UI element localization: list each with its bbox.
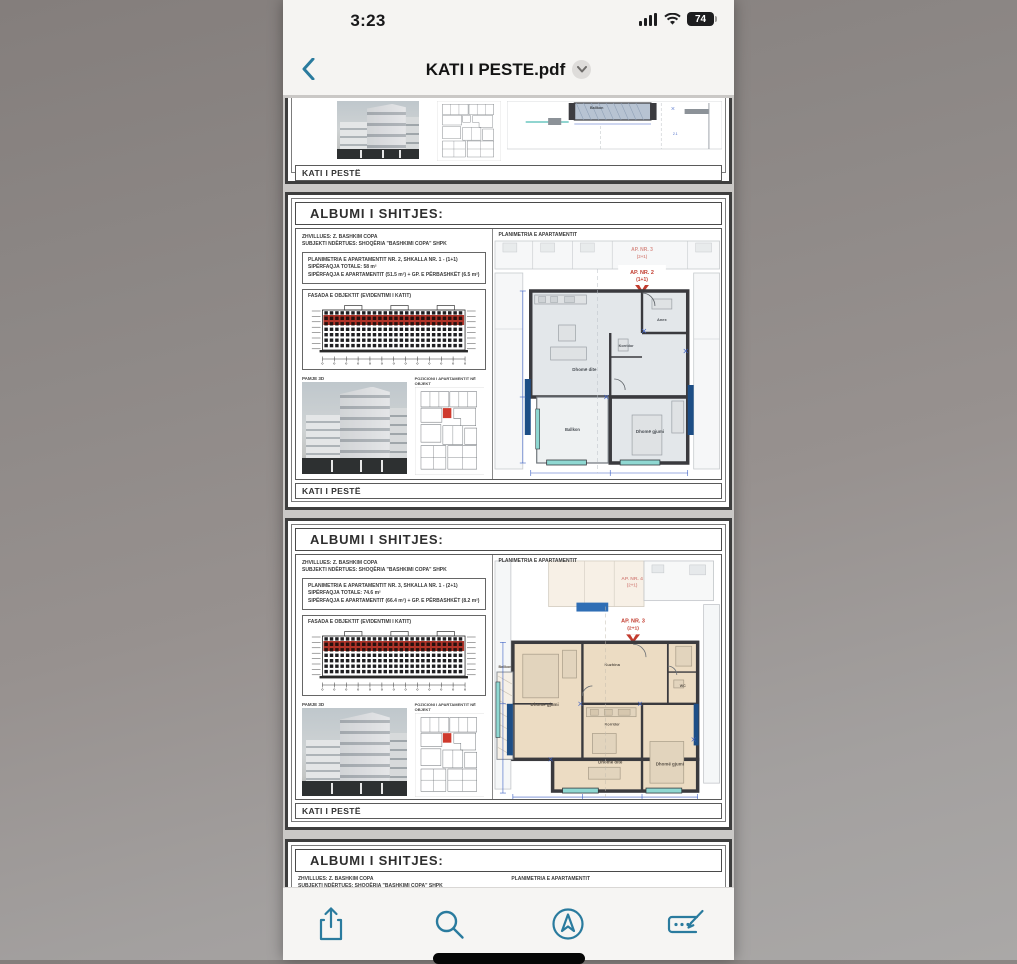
- svg-text:Dhomë gjumi: Dhomë gjumi: [655, 761, 683, 766]
- back-button[interactable]: [291, 51, 325, 87]
- status-time: 3:23: [333, 11, 403, 31]
- svg-text:Dhomë dite: Dhomë dite: [572, 367, 597, 372]
- facade-label: FASADA E OBJEKTIT (EVIDENTIMI I KATIT): [308, 619, 480, 625]
- plan-caption: PLANIMETRIA E APARTAMENTIT: [511, 876, 722, 883]
- nav-bar: KATI I PESTE.pdf: [283, 44, 734, 95]
- chevron-down-icon: [577, 66, 587, 73]
- plan-caption: PLANIMETRIA E APARTAMENTIT: [499, 232, 578, 238]
- facade-elevation-drawing: [308, 303, 480, 367]
- pdf-page-4-partial: ALBUMI I SHITJES: ZHVILLUES: Z. BASHKIM …: [285, 839, 732, 887]
- facade-label: FASADA E OBJEKTIT (EVIDENTIMI I KATIT): [308, 293, 480, 299]
- navigate-button[interactable]: [546, 902, 590, 946]
- info-line-1: PLANIMETRIA E APARTAMENTIT NR. 3, SHKALL…: [308, 583, 480, 591]
- svg-text:WC: WC: [679, 684, 685, 688]
- info-line-1: PLANIMETRIA E APARTAMENTIT NR. 2, SHKALL…: [308, 257, 480, 265]
- svg-text:Ballkon: Ballkon: [590, 105, 604, 110]
- pdf-page-3: ALBUMI I SHITJES: ZHVILLUES: Z. BASHKIM …: [285, 518, 732, 830]
- apartment-info-box: PLANIMETRIA E APARTAMENTIT NR. 2, SHKALL…: [302, 252, 486, 285]
- page-footer-label: KATI I PESTË: [295, 165, 722, 181]
- key-plan: [437, 101, 501, 161]
- share-icon: [316, 906, 346, 942]
- plan-caption: PLANIMETRIA E APARTAMENTIT: [499, 558, 578, 564]
- pdf-page-1-partial: Ballkon 2.1 KATI I PESTË: [285, 98, 732, 184]
- search-button[interactable]: [427, 902, 471, 946]
- svg-text:(2+1): (2+1): [627, 625, 639, 631]
- key-plan: [415, 713, 485, 797]
- svg-text:Dhomë gjumi: Dhomë gjumi: [530, 702, 558, 707]
- facade-box: FASADA E OBJEKTIT (EVIDENTIMI I KATIT): [302, 615, 486, 696]
- developer-line-1: ZHVILLUES: Z. BASHKIM COPA: [302, 234, 486, 241]
- keyplan-caption: POZICIONI I APARTAMENTIT NË OBJEKT: [415, 702, 485, 712]
- page-footer-label: KATI I PESTË: [295, 803, 722, 819]
- svg-text:AP. NR. 4: AP. NR. 4: [621, 576, 643, 582]
- chevron-left-icon: [302, 58, 315, 80]
- svg-text:(2+1): (2+1): [636, 254, 647, 259]
- info-line-2: SIPËRFAQJA TOTALE: 74.6 m²: [308, 590, 480, 598]
- svg-text:2.1: 2.1: [673, 132, 678, 136]
- title-dropdown-button[interactable]: [572, 60, 591, 79]
- battery-icon: 74: [687, 12, 714, 26]
- markup-icon: [667, 908, 705, 940]
- phone-screen: 3:23: [283, 0, 734, 960]
- building-photo: [337, 101, 419, 159]
- svg-text:Dhomë dite: Dhomë dite: [598, 759, 623, 764]
- svg-text:(1+1): (1+1): [636, 277, 648, 283]
- floor-plan-1plus1: AP. NR. 3 (2+1) AP. NR. 2 (1+1) HYRJA: [493, 229, 722, 479]
- info-line-2: SIPËRFAQJA TOTALE: 58 m²: [308, 264, 480, 272]
- info-line-3: SIPËRFAQJA E APARTAMENTIT (66.4 m²) + GP…: [308, 598, 480, 606]
- wifi-icon: [664, 13, 681, 26]
- status-bar: 3:23: [283, 0, 734, 44]
- svg-text:Korridor: Korridor: [618, 344, 634, 348]
- apartment-info-box: PLANIMETRIA E APARTAMENTIT NR. 3, SHKALL…: [302, 578, 486, 611]
- key-plan: [415, 387, 485, 475]
- navigate-compass-icon: [551, 907, 585, 941]
- building-photo: [302, 382, 407, 474]
- screenshot-canvas: 3:23: [0, 0, 1017, 960]
- home-indicator[interactable]: [433, 953, 585, 964]
- floor-plan-fragment: Ballkon 2.1: [507, 101, 722, 161]
- svg-text:Dhomë gjumi: Dhomë gjumi: [635, 429, 663, 434]
- bottom-toolbar: [283, 887, 734, 960]
- keyplan-caption: POZICIONI I APARTAMENTIT NË OBJEKT: [415, 376, 485, 386]
- developer-line-2: SUBJEKTI NDËRTUES: SHOQËRIA "BASHKIMI CO…: [302, 567, 486, 574]
- photo-caption: PAMJE 3D: [302, 376, 407, 381]
- svg-text:(2+1): (2+1): [626, 583, 637, 588]
- document-title: KATI I PESTE.pdf: [426, 60, 565, 80]
- pdf-page-2: ALBUMI I SHITJES: ZHVILLUES: Z. BASHKIM …: [285, 192, 732, 510]
- facade-elevation-drawing: [308, 629, 480, 693]
- svg-text:Korridor: Korridor: [604, 723, 620, 727]
- share-button[interactable]: [309, 902, 353, 946]
- svg-text:Kuzhina: Kuzhina: [604, 662, 620, 667]
- album-header: ALBUMI I SHITJES:: [295, 202, 722, 225]
- battery-percent: 74: [695, 14, 706, 25]
- svg-text:Ballkon: Ballkon: [498, 665, 511, 669]
- building-photo: [302, 708, 407, 796]
- cellular-signal-icon: [639, 13, 658, 26]
- developer-line-1: ZHVILLUES: Z. BASHKIM COPA: [302, 560, 486, 567]
- page-footer-label: KATI I PESTË: [295, 483, 722, 499]
- svg-text:Ballkon: Ballkon: [564, 427, 579, 432]
- floor-plan-2plus1: AP. NR. 4 (2+1) AP. NR. 3 (2+1) HYRJA: [493, 555, 722, 799]
- info-line-3: SIPËRFAQJA E APARTAMENTIT (51.5 m²) + GP…: [308, 272, 480, 280]
- album-header: ALBUMI I SHITJES:: [295, 849, 722, 872]
- facade-box: FASADA E OBJEKTIT (EVIDENTIMI I KATIT): [302, 289, 486, 370]
- search-icon: [433, 908, 465, 940]
- photo-caption: PAMJE 3D: [302, 702, 407, 707]
- svg-text:AP. NR. 3: AP. NR. 3: [631, 247, 653, 253]
- developer-line-1: ZHVILLUES: Z. BASHKIM COPA: [298, 876, 477, 883]
- markup-button[interactable]: [664, 902, 708, 946]
- svg-text:AP. NR. 3: AP. NR. 3: [621, 618, 645, 624]
- svg-text:Anex: Anex: [657, 317, 667, 322]
- pdf-scroll-area[interactable]: Ballkon 2.1 KATI I PESTË ALBUMI I SHITJE…: [283, 95, 734, 887]
- svg-text:AP. NR. 2: AP. NR. 2: [630, 270, 654, 276]
- developer-line-2: SUBJEKTI NDËRTUES: SHOQËRIA "BASHKIMI CO…: [302, 241, 486, 248]
- album-header: ALBUMI I SHITJES:: [295, 528, 722, 551]
